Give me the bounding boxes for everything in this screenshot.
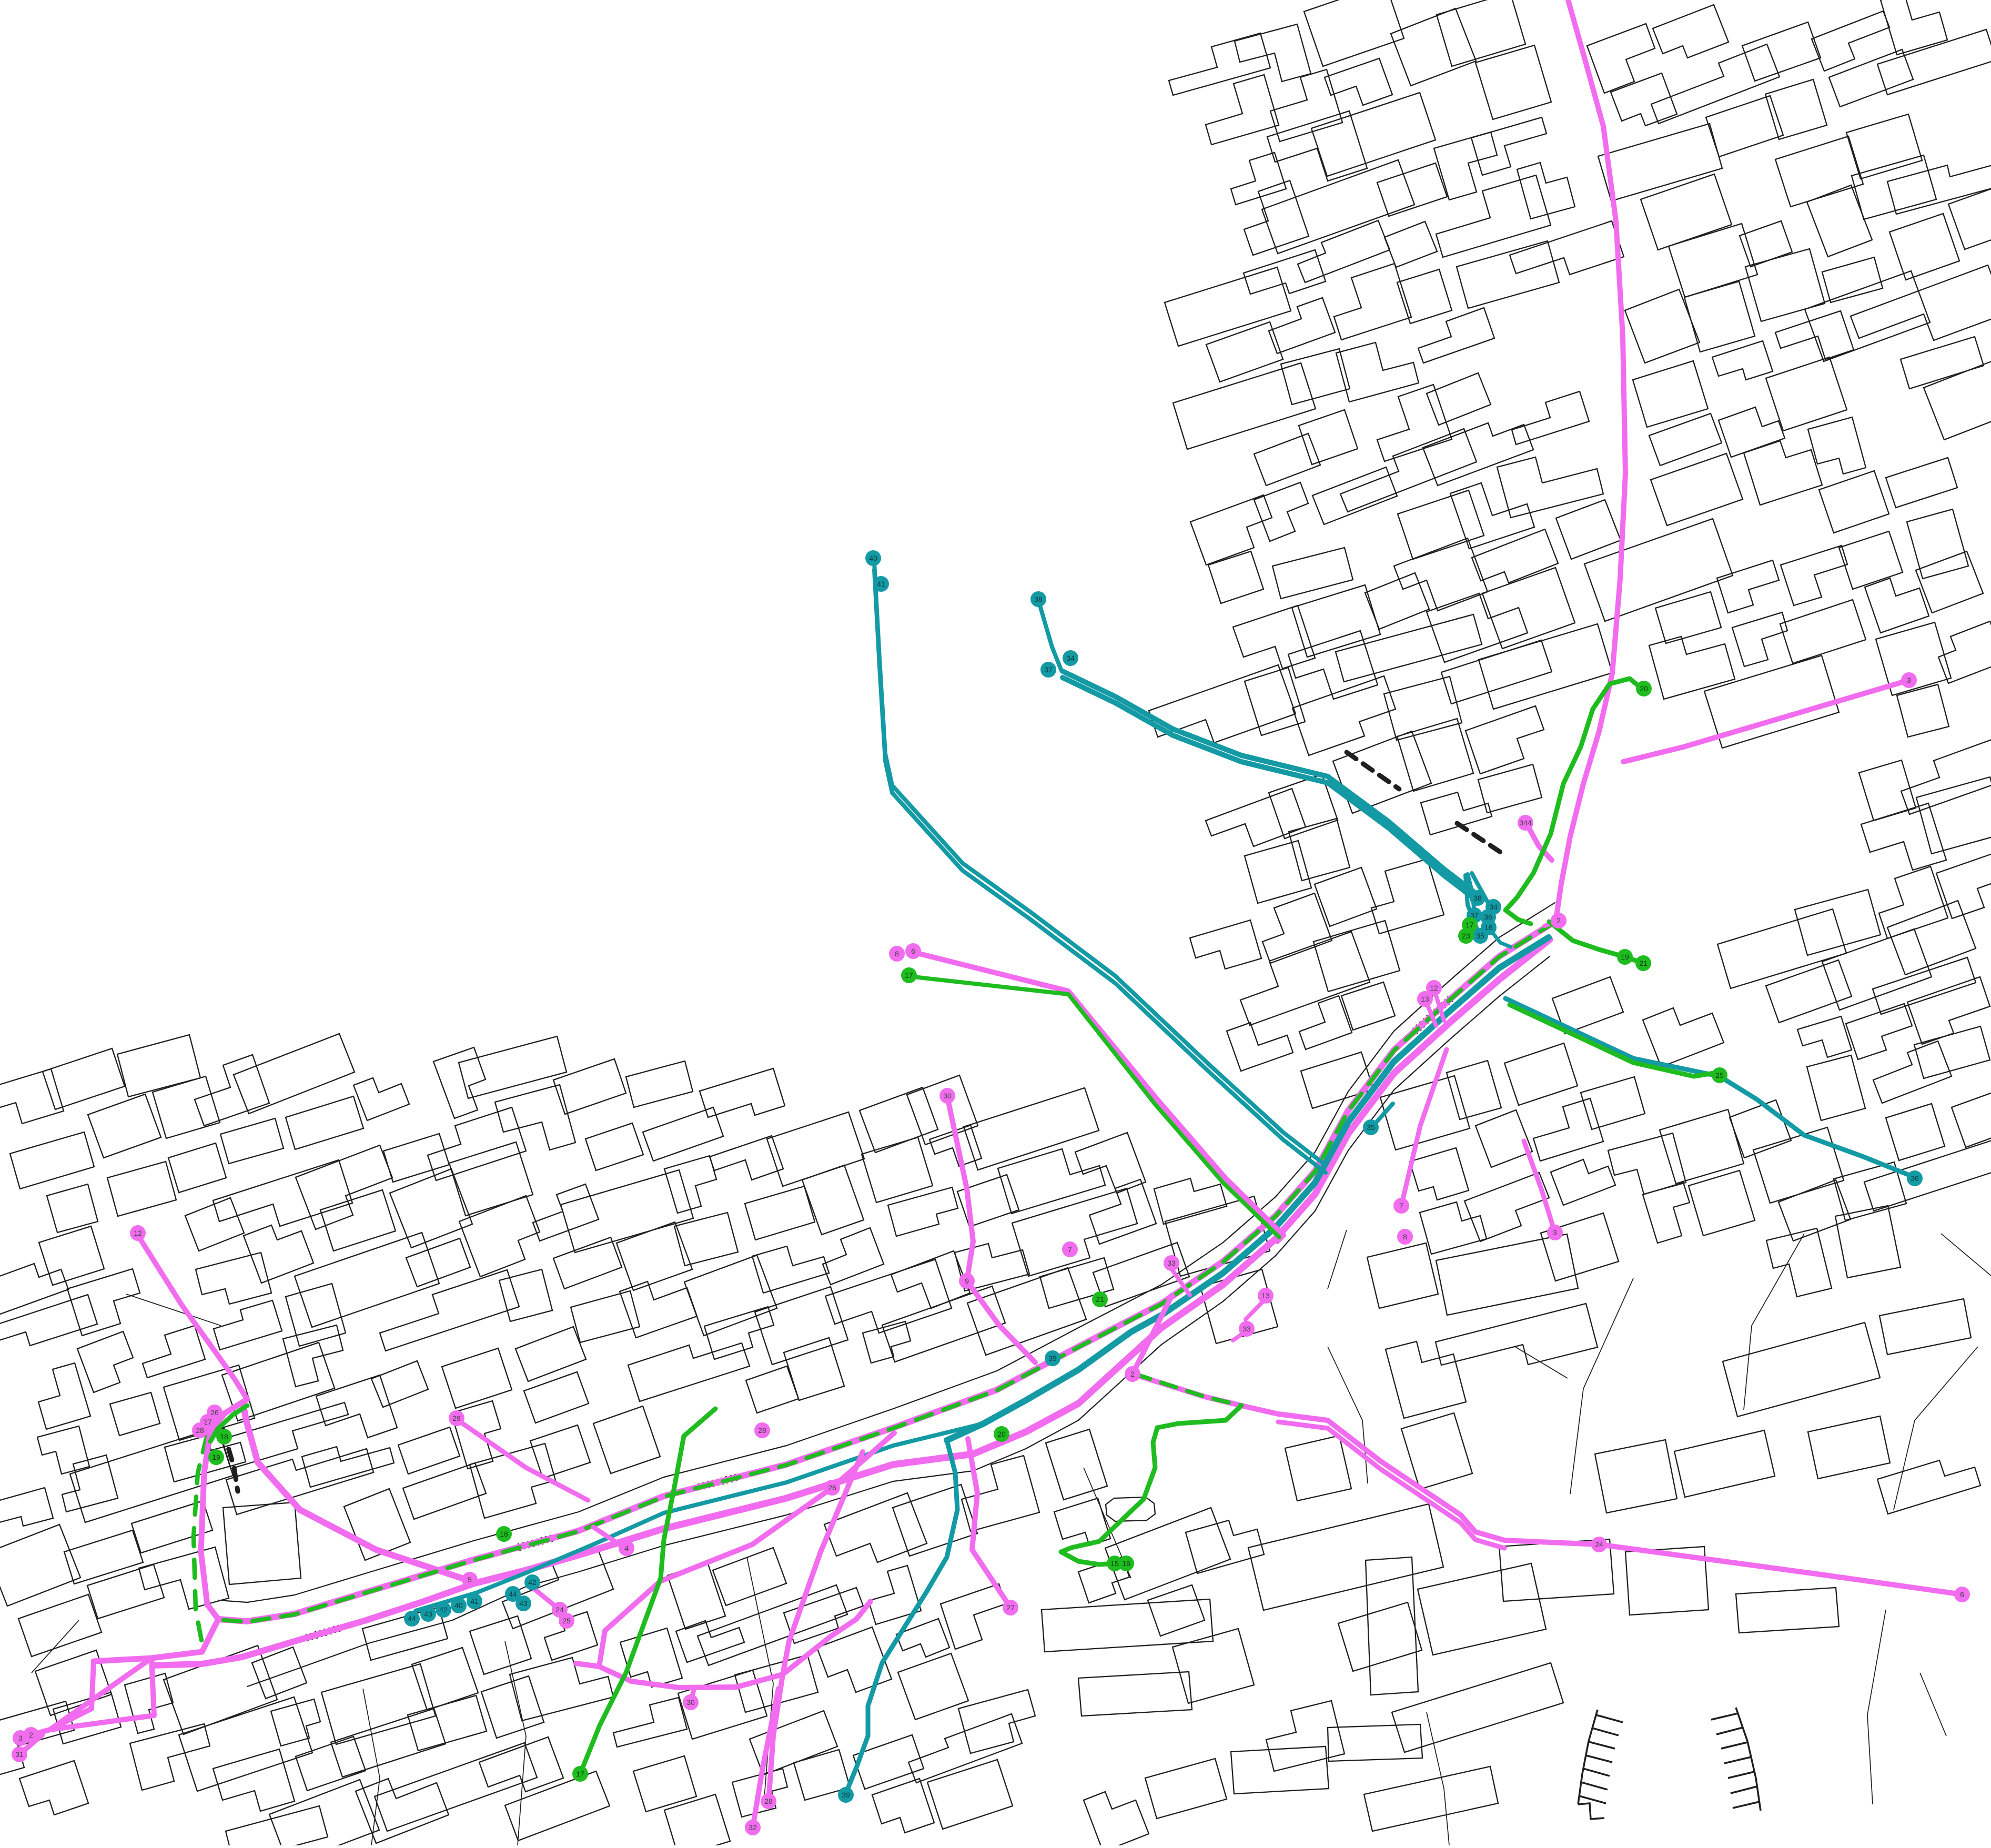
svg-text:3: 3 xyxy=(1907,676,1911,684)
svg-text:33: 33 xyxy=(1167,1259,1176,1267)
svg-text:16: 16 xyxy=(1122,1559,1130,1568)
svg-text:8: 8 xyxy=(1403,1233,1407,1241)
svg-text:35: 35 xyxy=(1476,932,1484,940)
svg-text:15: 15 xyxy=(1110,1559,1119,1568)
svg-text:20: 20 xyxy=(997,1430,1006,1438)
svg-text:20: 20 xyxy=(1640,684,1648,693)
svg-text:21: 21 xyxy=(1639,959,1648,967)
svg-text:36: 36 xyxy=(1911,1174,1919,1183)
svg-text:19: 19 xyxy=(1621,953,1629,961)
svg-text:34: 34 xyxy=(1066,654,1075,662)
svg-text:40: 40 xyxy=(454,1601,463,1610)
svg-text:41: 41 xyxy=(877,580,885,588)
svg-text:24: 24 xyxy=(1595,1540,1603,1549)
svg-text:40: 40 xyxy=(869,554,877,562)
svg-text:2: 2 xyxy=(1130,1370,1135,1378)
svg-text:344: 344 xyxy=(1519,819,1532,827)
svg-text:17: 17 xyxy=(576,1770,584,1778)
svg-text:9: 9 xyxy=(965,1277,969,1285)
svg-text:29: 29 xyxy=(452,1414,461,1422)
svg-text:30: 30 xyxy=(943,1092,952,1100)
svg-text:12: 12 xyxy=(1430,984,1438,992)
svg-text:5: 5 xyxy=(468,1576,472,1584)
svg-text:43: 43 xyxy=(424,1610,432,1618)
svg-text:30: 30 xyxy=(686,1698,695,1706)
svg-text:44: 44 xyxy=(509,1590,517,1598)
svg-text:28: 28 xyxy=(758,1426,766,1435)
svg-text:24: 24 xyxy=(555,1605,564,1614)
svg-text:18: 18 xyxy=(220,1432,228,1441)
svg-text:13: 13 xyxy=(1261,1291,1270,1300)
svg-text:17: 17 xyxy=(1466,921,1474,929)
svg-text:13: 13 xyxy=(1421,995,1429,1003)
svg-text:19: 19 xyxy=(212,1453,220,1461)
svg-text:42: 42 xyxy=(528,1578,537,1587)
svg-text:27: 27 xyxy=(1006,1603,1015,1612)
svg-text:39: 39 xyxy=(1048,1354,1057,1362)
svg-text:38: 38 xyxy=(1034,595,1043,603)
svg-text:37: 37 xyxy=(1044,665,1053,674)
svg-text:43: 43 xyxy=(519,1599,528,1608)
svg-text:39: 39 xyxy=(842,1791,850,1799)
svg-text:3: 3 xyxy=(18,1734,23,1742)
svg-text:28: 28 xyxy=(764,1797,773,1805)
svg-text:8: 8 xyxy=(895,950,899,958)
svg-text:6: 6 xyxy=(911,947,915,955)
svg-text:35: 35 xyxy=(1367,1123,1375,1132)
svg-text:44: 44 xyxy=(408,1614,416,1623)
svg-text:12: 12 xyxy=(134,1229,142,1237)
svg-text:7: 7 xyxy=(1068,1245,1072,1254)
svg-text:38: 38 xyxy=(1473,894,1482,902)
svg-text:31: 31 xyxy=(15,1750,24,1759)
svg-text:4: 4 xyxy=(624,1544,629,1552)
svg-text:23: 23 xyxy=(1462,932,1470,940)
svg-text:3: 3 xyxy=(1553,1228,1557,1237)
svg-text:2: 2 xyxy=(29,1731,33,1739)
svg-text:42: 42 xyxy=(439,1605,448,1614)
svg-text:26: 26 xyxy=(828,1483,836,1492)
svg-text:25: 25 xyxy=(562,1617,571,1625)
svg-text:28: 28 xyxy=(196,1426,204,1435)
svg-text:17: 17 xyxy=(905,971,913,979)
svg-text:32: 32 xyxy=(749,1823,757,1832)
svg-text:6: 6 xyxy=(1960,1590,1964,1599)
svg-text:41: 41 xyxy=(470,1597,479,1605)
svg-text:7: 7 xyxy=(1399,1201,1403,1210)
svg-text:18: 18 xyxy=(500,1530,508,1538)
svg-text:2: 2 xyxy=(1557,916,1561,925)
svg-text:21: 21 xyxy=(1096,1295,1104,1304)
svg-text:25: 25 xyxy=(1715,1071,1724,1079)
svg-text:33: 33 xyxy=(1242,1325,1251,1333)
